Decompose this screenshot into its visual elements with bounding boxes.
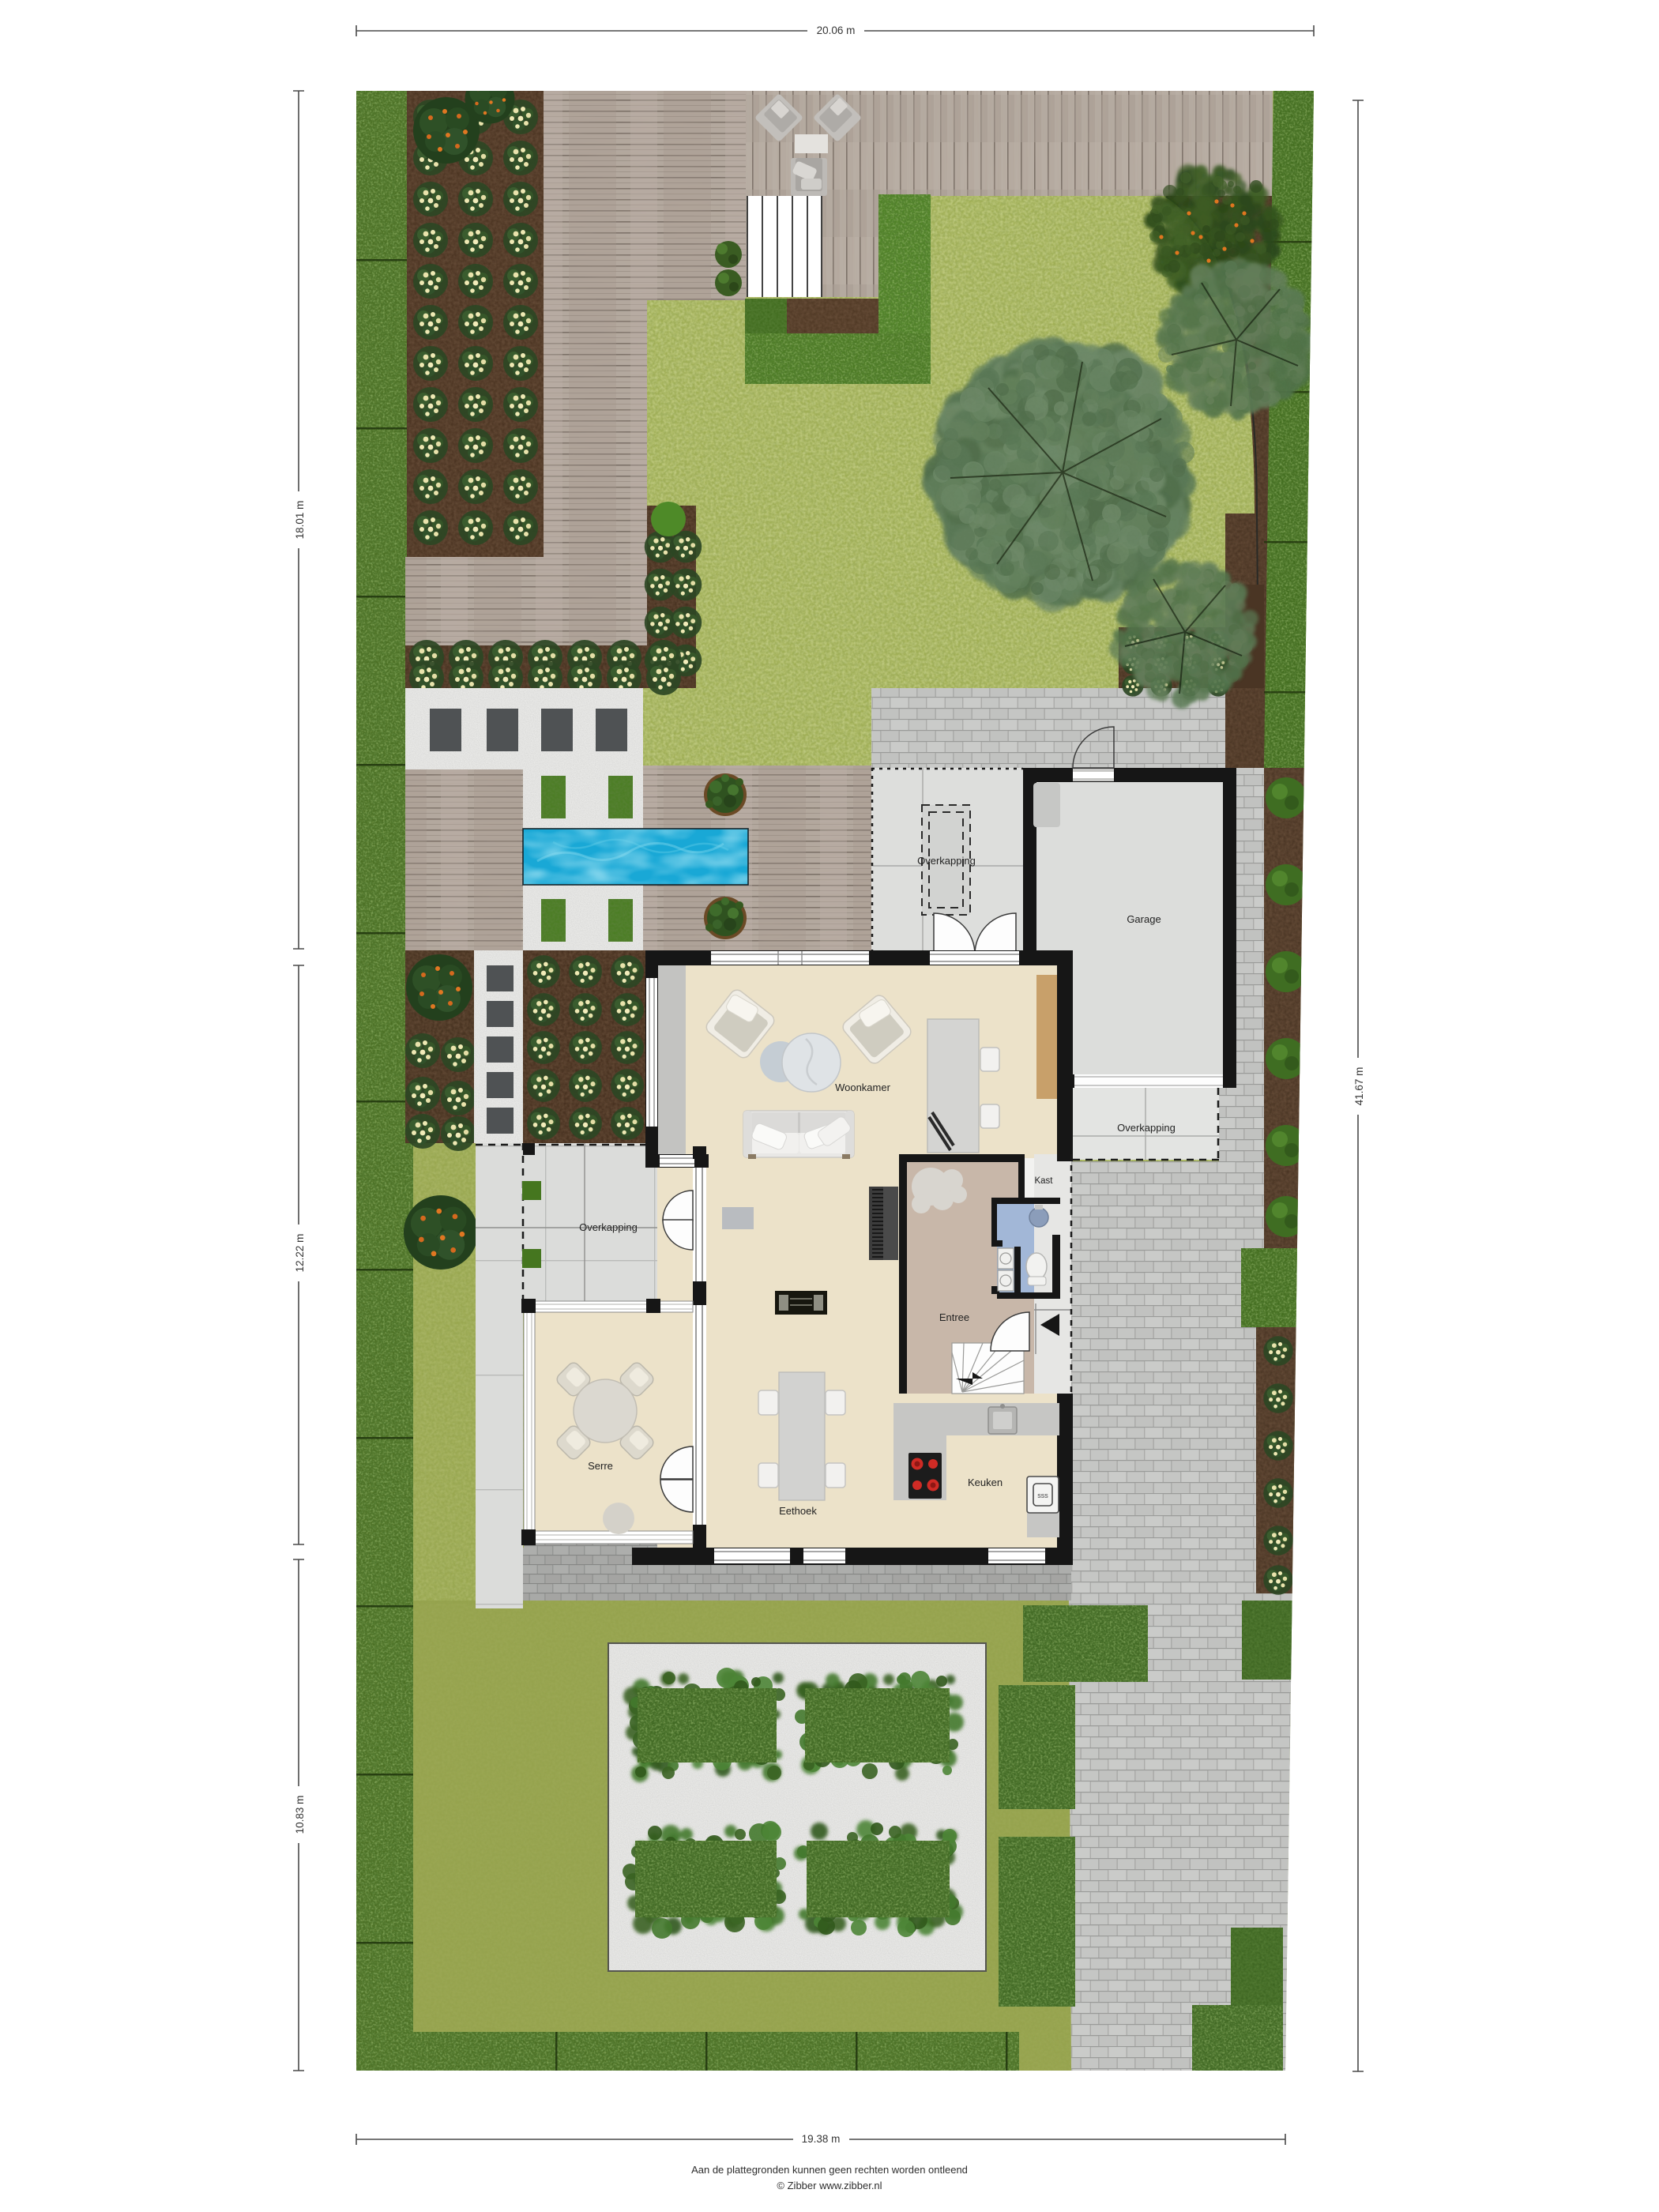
svg-text:Kast: Kast (1034, 1176, 1053, 1186)
svg-text:Overkapping: Overkapping (917, 855, 976, 867)
svg-text:Entree: Entree (939, 1311, 969, 1323)
svg-text:Aan de plattegronden kunnen ge: Aan de plattegronden kunnen geen rechten… (691, 2164, 968, 2176)
svg-text:Woonkamer: Woonkamer (835, 1082, 891, 1093)
svg-text:Serre: Serre (588, 1460, 613, 1472)
svg-text:Eethoek: Eethoek (779, 1505, 817, 1517)
svg-text:Keuken: Keuken (968, 1477, 1003, 1488)
svg-text:sss: sss (1037, 1492, 1048, 1499)
svg-text:Garage: Garage (1127, 913, 1161, 925)
svg-text:© Zibber www.zibber.nl: © Zibber www.zibber.nl (777, 2180, 882, 2191)
svg-text:41.67 m: 41.67 m (1353, 1067, 1365, 1106)
svg-text:19.38 m: 19.38 m (802, 2133, 841, 2145)
svg-text:10.83 m: 10.83 m (294, 1796, 306, 1834)
svg-text:18.01 m: 18.01 m (294, 501, 306, 540)
svg-text:Overkapping: Overkapping (1117, 1122, 1176, 1134)
svg-text:20.06 m: 20.06 m (817, 24, 856, 36)
svg-text:Overkapping: Overkapping (579, 1221, 638, 1233)
svg-text:12.22 m: 12.22 m (294, 1234, 306, 1273)
